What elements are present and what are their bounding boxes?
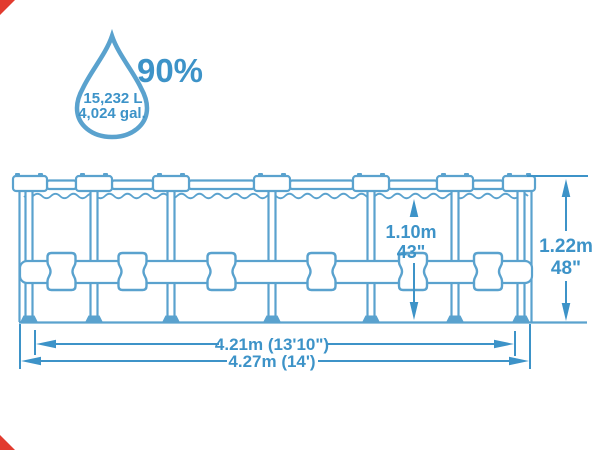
rail-segment [47,181,76,190]
height-m-label: 1.22m [539,236,593,257]
water-depth-dimension: 1.10m 43" [385,199,436,320]
band-connector [308,253,336,290]
band-connector [474,253,502,290]
corner-triangle-top-left [0,0,15,15]
water-depth-in-label: 43" [397,242,426,262]
rail-segment [112,181,153,190]
pool-leg [20,191,38,323]
rail-joint [13,173,47,191]
capacity-percent-label: 90% [137,52,203,89]
band-connector [48,253,76,290]
middle-band [20,261,532,283]
pool-leg [85,191,103,323]
pool-leg [512,191,530,323]
capacity-group: 90% 15,232 L 4,024 gal. [77,36,203,137]
pool-legs [20,191,530,323]
rail-segment [189,181,254,190]
band-connector [119,253,147,290]
height-in-label: 48" [551,258,581,279]
pool-leg [263,191,281,323]
outer-width-label: 4.27m (14') [228,352,315,371]
rail-joint [437,173,473,191]
capacity-gallons-label: 4,024 gal. [78,105,146,122]
rail-joint [353,173,389,191]
arrow-up-icon [410,199,419,217]
height-dimension: 1.22m 48" [527,176,593,321]
arrow-down-icon [562,303,571,321]
pool-frame [13,173,587,323]
corner-triangle-bottom-left [0,435,15,450]
arrow-right-icon [509,357,529,366]
pool-dimensions-diagram: 90% 15,232 L 4,024 gal. [0,0,600,450]
band-connector [208,253,236,290]
pool-leg [362,191,380,323]
rail-segment [389,181,437,190]
rail-joint [153,173,189,191]
pool-leg [446,191,464,323]
water-depth-m-label: 1.10m [385,222,436,242]
pool-leg [162,191,180,323]
rail-joint [254,173,290,191]
pool-side-view-svg: 90% 15,232 L 4,024 gal. [0,0,600,450]
rail-joint [76,173,112,191]
rail-segment [290,181,353,190]
arrow-right-icon [494,340,514,349]
rail-segment [473,181,503,190]
arrow-down-icon [410,302,419,320]
rail-joints [13,173,535,191]
